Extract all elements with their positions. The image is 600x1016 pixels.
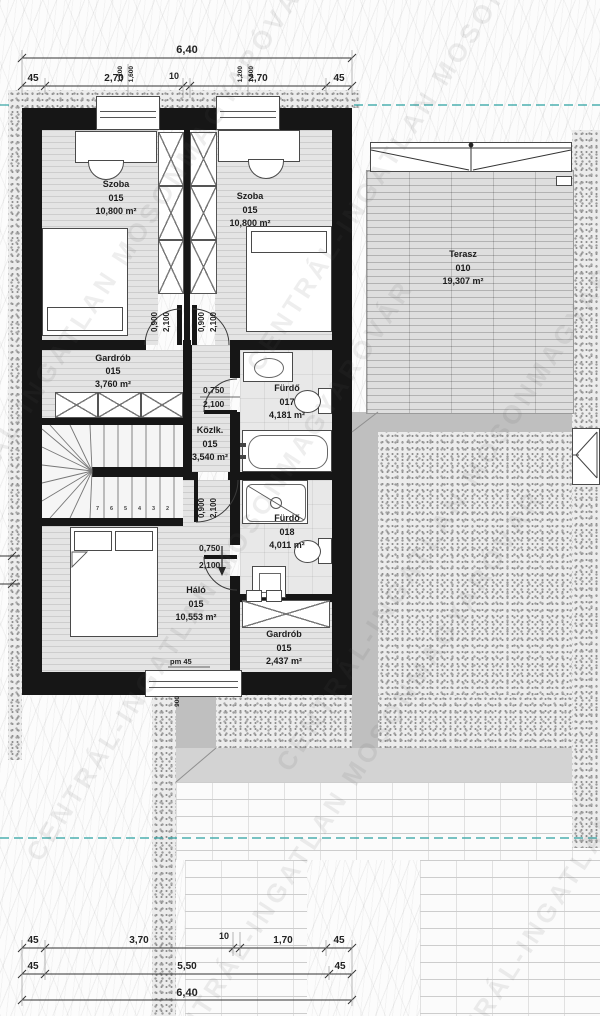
walkway-strip <box>176 748 600 782</box>
door-dim-width: 0,750 <box>203 385 224 395</box>
gravel-court <box>378 432 572 695</box>
dim-top-total: 6,40 <box>176 44 197 56</box>
desk-left <box>75 131 157 163</box>
door-dim-height: 2,100 <box>209 312 218 332</box>
dim-top-seg: 2,70 <box>248 73 267 84</box>
dim-bottom-total: 6,40 <box>176 987 197 999</box>
dim-bottom-seg: 3,70 <box>129 935 148 946</box>
room-name: Szoba <box>200 190 300 204</box>
room-label-furdo-018: Fürdő 018 4,011 m² <box>247 512 327 553</box>
window-dim-height: 1,600 <box>128 66 135 82</box>
room-number: 010 <box>413 262 513 276</box>
sink-017 <box>243 352 293 382</box>
room-name: Gardrób <box>244 628 324 642</box>
gravel-strip-left <box>8 90 22 760</box>
room-halo-nook-floor <box>183 480 230 526</box>
pillow <box>115 531 153 551</box>
wall-exterior-right <box>332 108 352 695</box>
room-area: 3,760 m² <box>63 378 163 391</box>
room-number: 018 <box>247 526 327 540</box>
window-szoba-right <box>216 96 280 130</box>
room-label-terasz: Terasz 010 19,307 m² <box>413 248 513 289</box>
window-frame-line <box>149 681 238 682</box>
door-dim-width: 0,750 <box>199 543 220 553</box>
dim-bottom-mid: 45 <box>334 961 345 972</box>
dim-bottom-seg: 45 <box>333 935 344 946</box>
dim-bottom-seg: 10 <box>219 931 229 941</box>
room-label-gardrob-top: Gardrób 015 3,760 m² <box>63 352 163 391</box>
window-halo-bottom <box>145 670 242 697</box>
room-area: 3,540 m² <box>170 451 250 465</box>
room-label-gardrob-bottom: Gardrób 015 2,437 m² <box>244 628 324 669</box>
stair-step-number: 3 <box>152 506 155 512</box>
room-area: 10,800 m² <box>200 217 300 231</box>
room-area: 10,553 m² <box>156 611 236 625</box>
pillow <box>74 531 112 551</box>
wall-stairs-halo <box>42 518 183 526</box>
room-area: 2,437 m² <box>244 655 324 669</box>
room-name: Szoba <box>66 178 166 192</box>
dim-bottom-mid: 5,50 <box>177 961 196 972</box>
dim-top-seg: 2,70 <box>104 73 123 84</box>
terrace-deck <box>366 170 574 414</box>
room-name: Fürdő <box>247 382 327 396</box>
door-dim-height: 2,100 <box>199 560 220 570</box>
sink-basin <box>254 358 284 378</box>
paver-area-right <box>420 860 600 1016</box>
wall-corridor-south-a <box>183 472 198 480</box>
gravel-strip-bottom-left <box>152 695 176 1016</box>
door-dim-width: 0,900 <box>197 498 206 518</box>
pillow <box>47 307 123 331</box>
wall-bedrooms-south-a <box>42 340 146 350</box>
wall-bath-west-a <box>230 345 240 378</box>
room-number: 015 <box>244 642 324 656</box>
window-frame-line <box>149 687 238 688</box>
stair-step-number: 7 <box>96 506 99 512</box>
room-label-halo: Háló 015 10,553 m² <box>156 584 236 625</box>
stair-step-number: 2 <box>166 506 169 512</box>
room-name: Háló <box>156 584 236 598</box>
terrace-marker <box>556 176 572 186</box>
window-frame-line <box>220 111 276 112</box>
door-dim-height: 2,100 <box>203 399 224 409</box>
wall-between-baths <box>240 472 332 480</box>
room-number: 015 <box>200 204 300 218</box>
door-dim-height: 2,100 <box>162 312 171 332</box>
stair-step-number: 4 <box>138 506 141 512</box>
dim-top-seg: 45 <box>27 73 38 84</box>
dim-bottom-seg: 1,70 <box>273 935 292 946</box>
wall-cabinet <box>246 590 262 602</box>
pillow <box>251 231 327 253</box>
stair-step-number: 5 <box>124 506 127 512</box>
stair-spine-wall <box>92 467 183 477</box>
retaining-wall-top <box>360 412 572 432</box>
wall-exterior-left <box>22 108 42 695</box>
dim-bottom-mid: 45 <box>27 961 38 972</box>
dim-top-seg: 45 <box>333 73 344 84</box>
door-dim-width: 0,900 <box>197 312 206 332</box>
window-parapet-label: pm 45 <box>170 657 192 666</box>
wardrobe-unit <box>190 132 217 186</box>
bathtub-017 <box>242 430 332 472</box>
window-frame-line <box>100 111 156 112</box>
wardrobe-unit <box>98 392 141 418</box>
stair-step-number: 6 <box>110 506 113 512</box>
room-label-furdo-017: Fürdő 017 4,181 m² <box>247 382 327 423</box>
room-label-szoba-left: Szoba 015 10,800 m² <box>66 178 166 219</box>
bed-halo <box>70 527 158 637</box>
room-name: Fürdő <box>247 512 327 526</box>
wardrobe-unit <box>158 240 184 294</box>
window-dim-height: 900 <box>174 696 181 707</box>
room-number: 017 <box>247 396 327 410</box>
door-dim-width: 0,900 <box>150 312 159 332</box>
bathtub-inner <box>248 435 328 469</box>
dim-top-seg: 10 <box>169 71 179 81</box>
bed-left <box>42 228 128 336</box>
paver-band <box>176 782 600 860</box>
door-dim-height: 2,100 <box>209 498 218 518</box>
retaining-wall-side <box>352 412 378 748</box>
room-number: 015 <box>170 438 250 452</box>
wardrobe-unit <box>55 392 98 418</box>
wall-bedrooms-south-c <box>230 340 332 350</box>
room-area: 4,011 m² <box>247 539 327 553</box>
wardrobe-unit <box>242 600 330 628</box>
gravel-strip-right <box>572 130 600 848</box>
wall-gardrob-stairs <box>42 418 183 425</box>
wardrobe-unit <box>141 392 183 418</box>
room-label-szoba-right: Szoba 015 10,800 m² <box>200 190 300 231</box>
window-frame-line <box>100 117 156 118</box>
room-name: Gardrób <box>63 352 163 365</box>
wardrobe-unit <box>190 240 217 294</box>
room-name: Terasz <box>413 248 513 262</box>
window-szoba-left <box>96 96 160 130</box>
dim-bottom-seg: 45 <box>27 935 38 946</box>
gravel-court-lower <box>216 695 572 748</box>
window-frame-line <box>220 117 276 118</box>
side-gate-marker <box>572 428 600 485</box>
floor-plan-canvas: Szoba 015 10,800 m² Szoba 015 10,800 m² … <box>0 0 600 1016</box>
pergola <box>370 142 572 172</box>
room-number: 015 <box>63 365 163 378</box>
retaining-wall-left <box>176 695 216 748</box>
room-area: 10,800 m² <box>66 205 166 219</box>
room-name: Közlk. <box>170 424 250 438</box>
wall-exterior-top <box>22 108 352 130</box>
window-dim-width: 1,200 <box>237 66 244 82</box>
room-number: 015 <box>156 598 236 612</box>
room-area: 4,181 m² <box>247 409 327 423</box>
gravel-strip-top <box>8 90 360 108</box>
wall-cabinet <box>266 590 282 602</box>
shower-drain <box>270 497 282 509</box>
room-area: 19,307 m² <box>413 275 513 289</box>
bed-right <box>246 226 332 332</box>
room-number: 015 <box>66 192 166 206</box>
room-label-kozlk: Közlk. 015 3,540 m² <box>170 424 250 465</box>
desk-right <box>218 130 300 162</box>
